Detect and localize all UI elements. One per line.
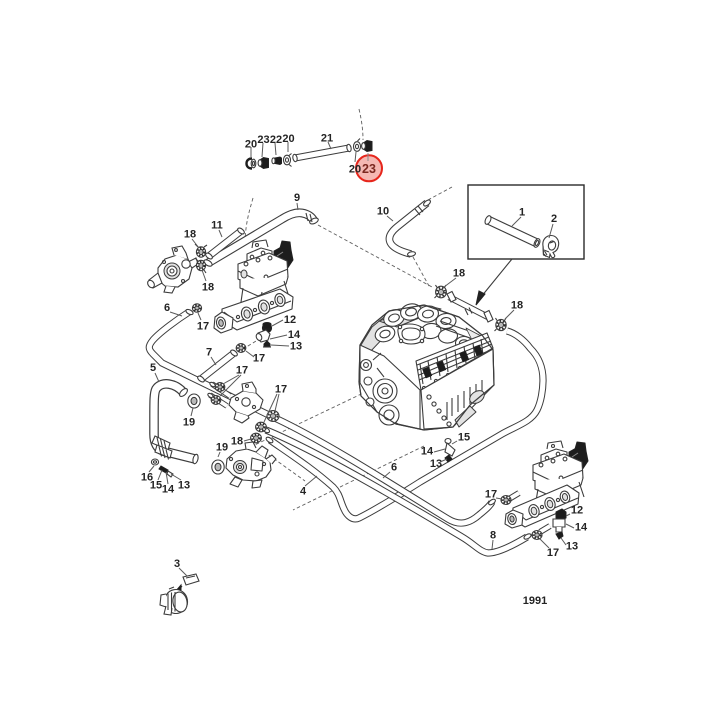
svg-text:23: 23	[362, 162, 376, 176]
svg-text:20: 20	[349, 164, 361, 176]
